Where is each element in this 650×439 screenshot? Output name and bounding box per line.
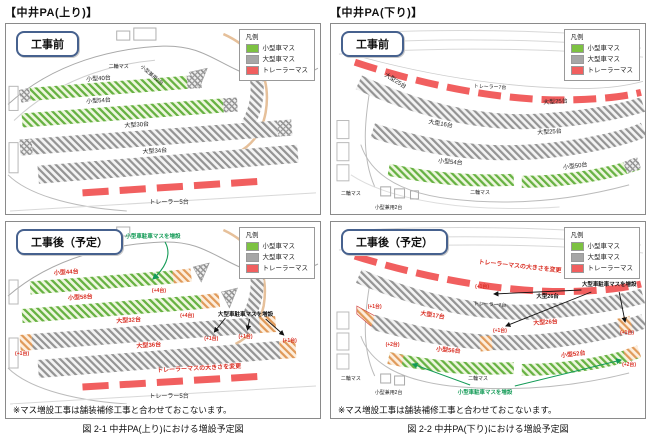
label-add-large-2: (+1台) xyxy=(238,333,252,340)
row-endcap xyxy=(278,128,292,129)
trailer-row xyxy=(82,376,265,387)
label-add-3: (+1台) xyxy=(620,329,634,336)
stage-label-before: 工事前 xyxy=(16,31,79,57)
structure-outline xyxy=(337,312,349,329)
label-add-large-1: (+1台) xyxy=(204,335,218,342)
legend-swatch-small xyxy=(571,242,584,251)
figure-caption-up: 図 2-1 中井PA(上り)における増設予定図 xyxy=(5,422,321,435)
large-car-row-1 xyxy=(32,129,278,147)
label-large-row-1: 大型30台 xyxy=(124,120,149,130)
legend-title: 凡例 xyxy=(571,230,634,241)
small-car-row-left xyxy=(389,358,514,369)
large-car-row-1 xyxy=(32,325,259,342)
label-combo: 小型兼用2台 xyxy=(375,204,403,211)
label-large-mid-left: 大型17台 xyxy=(420,309,445,321)
structure-outline xyxy=(337,165,349,181)
legend-label-trailer: トレーラーマス xyxy=(263,263,309,274)
label-add-small-left: (+2台) xyxy=(386,341,400,348)
annotation-add-small: 小型車駐車マスを増設 xyxy=(458,388,513,396)
small-car-row-left xyxy=(389,170,514,181)
legend-title: 凡例 xyxy=(246,32,309,43)
label-moto: 二輪マス xyxy=(341,190,361,197)
legend-swatch-large xyxy=(571,55,584,64)
structure-outline xyxy=(337,333,349,350)
label-small-right: 小型52台 xyxy=(560,349,586,360)
legend-title: 凡例 xyxy=(571,32,634,43)
column-nakai-down: 【中井PA(下り)】 xyxy=(330,4,646,435)
legend: 凡例 小型車マス 大型車マス トレーラーマス xyxy=(239,29,316,81)
added-small-space xyxy=(389,358,403,361)
legend-label-small: 小型車マス xyxy=(263,43,296,54)
label-small-left: 小型54台 xyxy=(438,157,463,167)
legend: 凡例 小型車マス 大型車マス トレーラーマス xyxy=(564,227,641,279)
label-moto-2: 二輪マス xyxy=(468,375,488,382)
legend-label-small: 小型車マス xyxy=(263,241,296,252)
legend-label-large: 大型車マス xyxy=(263,252,296,263)
label-large-row-2: 大型34台 xyxy=(142,146,167,156)
legend: 凡例 小型車マス 大型車マス トレーラーマス xyxy=(564,29,641,81)
added-large-space xyxy=(260,324,276,325)
panel-up-before: 二輪マス 小型兼用2台 小型40台 小型54台 大型30台 大型34台 トレーラ… xyxy=(5,23,321,215)
legend-label-small: 小型車マス xyxy=(588,43,621,54)
section-title-down: 【中井PA(下り)】 xyxy=(330,4,646,20)
structure-outline xyxy=(9,143,18,173)
label-add-1: (+1台) xyxy=(475,283,489,290)
label-small-row-1: 小型44台 xyxy=(53,267,79,277)
section-title-up: 【中井PA(上り)】 xyxy=(5,4,321,20)
label-large-row-1: 大型32台 xyxy=(116,315,141,325)
label-small-row-2: 小型54台 xyxy=(86,96,111,106)
label-trailer-row: トレーラー5台 xyxy=(149,198,188,206)
label-trailer-row: トレーラー5台 xyxy=(149,392,188,400)
small-car-row-2 xyxy=(22,105,223,120)
legend-swatch-trailer xyxy=(571,264,584,273)
row-endcap xyxy=(625,163,639,168)
legend: 凡例 小型車マス 大型車マス トレーラーマス xyxy=(239,227,316,279)
row-endcap xyxy=(223,104,237,105)
building-outline xyxy=(381,374,391,383)
legend-swatch-trailer xyxy=(246,66,259,75)
label-add-large-4: (+1台) xyxy=(15,350,29,357)
added-small-spaces xyxy=(173,275,191,277)
large-car-row-2 xyxy=(38,350,280,369)
row-endcap xyxy=(20,94,30,96)
small-car-row-1 xyxy=(30,82,187,94)
legend-label-trailer: トレーラーマス xyxy=(588,263,634,274)
stage-label-after: 工事後（予定） xyxy=(341,229,448,255)
panel-down-after: トレーラーマスの大きさを変更 トレーラー7台 (+1台) 大型26台 大型車駐車… xyxy=(330,221,646,419)
building-outline xyxy=(395,376,405,385)
stage-label-after: 工事後（予定） xyxy=(16,229,123,255)
annotation-add-large: 大型車駐車マスを増設 xyxy=(218,310,274,318)
legend-swatch-small xyxy=(571,44,584,53)
annotation-trailer-resize: トレーラーマスの大きさを変更 xyxy=(478,258,563,275)
legend-label-trailer: トレーラーマス xyxy=(588,65,634,76)
large-car-row-2 xyxy=(38,154,298,175)
added-small-spaces xyxy=(201,300,219,302)
structure-outline xyxy=(337,143,349,161)
legend-swatch-large xyxy=(246,55,259,64)
added-large-space xyxy=(280,349,296,350)
legend-label-large: 大型車マス xyxy=(588,54,621,65)
label-moto-2: 二輪マス xyxy=(470,189,490,196)
small-car-row-2 xyxy=(22,302,201,316)
annotation-add-large: 大型車駐車マスを増設 xyxy=(582,280,637,288)
structure-outline xyxy=(337,121,349,139)
figure-page: 【中井PA(上り)】 xyxy=(0,0,650,439)
added-large-space xyxy=(20,342,32,343)
island-wedge xyxy=(193,263,209,282)
row-endcap xyxy=(20,147,32,148)
building-outline xyxy=(134,28,156,40)
label-small-row-2: 小型58台 xyxy=(67,292,93,302)
panel-up-after: 小型車駐車マスを増設 小型44台 (+4台) 小型58台 (+4台) 大型32台… xyxy=(5,221,321,419)
legend-swatch-trailer xyxy=(246,264,259,273)
legend-swatch-trailer xyxy=(571,66,584,75)
large-car-band-2 xyxy=(373,321,644,343)
construction-note: ※マス増設工事は舗装補修工事と合わせておこないます。 xyxy=(13,404,232,416)
label-add-small-1: (+4台) xyxy=(152,287,166,294)
figure-caption-down: 図 2-2 中井PA(下り)における増設予定図 xyxy=(330,422,646,435)
label-large-right: 大型26台 xyxy=(536,292,559,300)
construction-note: ※マス増設工事は舗装補修工事と合わせておこないます。 xyxy=(338,404,557,416)
building-outline xyxy=(117,31,130,40)
label-add-4: (+1台) xyxy=(368,303,382,310)
legend-title: 凡例 xyxy=(246,230,309,241)
label-small-right: 小型50台 xyxy=(563,160,588,171)
legend-swatch-large xyxy=(571,253,584,262)
label-add-2: (+1台) xyxy=(493,327,507,334)
legend-label-large: 大型車マス xyxy=(263,54,296,65)
label-add-small-right: (+2台) xyxy=(622,361,636,368)
legend-label-small: 小型車マス xyxy=(588,241,621,252)
added-large-space xyxy=(619,323,631,326)
label-combo: 小型兼用2台 xyxy=(375,389,403,396)
label-add-small-2: (+4台) xyxy=(180,312,194,319)
structure-outline xyxy=(337,354,349,369)
added-large-space xyxy=(480,343,492,344)
label-moto: 二輪マス xyxy=(109,63,129,70)
legend-label-trailer: トレーラーマス xyxy=(263,65,309,76)
legend-swatch-small xyxy=(246,44,259,53)
label-add-large-3: (+1台) xyxy=(283,337,297,344)
island-wedge xyxy=(221,288,237,308)
annotation-add-small: 小型車駐車マスを増設 xyxy=(125,232,181,240)
panel-down-before: 大型25台 トレーラー7台 大型25台 大型16台 大型25台 小型54台 小型… xyxy=(330,23,646,215)
large-car-band-2 xyxy=(373,130,644,153)
legend-label-large: 大型車マス xyxy=(588,252,621,263)
added-small-space xyxy=(625,351,639,356)
small-car-row-1 xyxy=(30,277,173,288)
legend-swatch-small xyxy=(246,242,259,251)
legend-swatch-large xyxy=(246,253,259,262)
trailer-row xyxy=(82,181,267,193)
label-moto: 二輪マス xyxy=(341,375,361,382)
structure-outline xyxy=(9,86,18,110)
column-nakai-up: 【中井PA(上り)】 xyxy=(5,4,321,435)
stage-label-before: 工事前 xyxy=(341,31,404,57)
